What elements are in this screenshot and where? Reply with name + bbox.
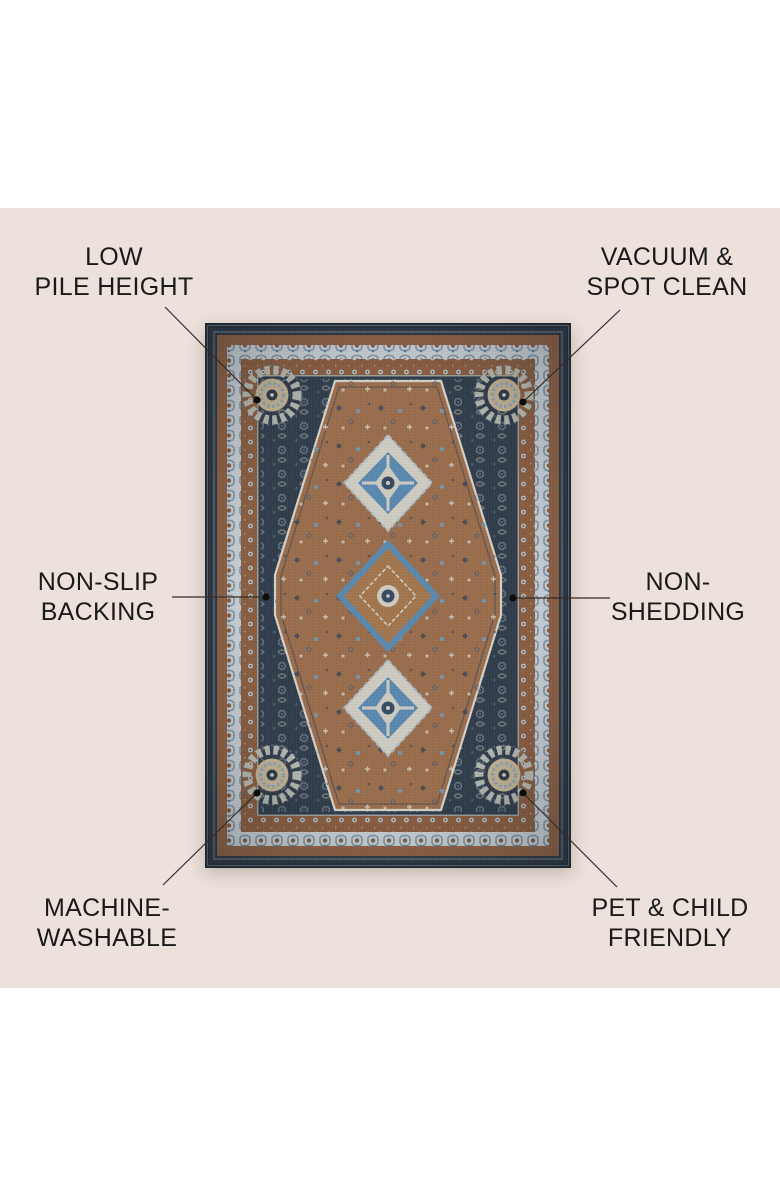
label-line: FRIENDLY bbox=[560, 923, 780, 953]
label-machine-washable: MACHINE- WASHABLE bbox=[0, 893, 214, 953]
rug-image bbox=[205, 323, 571, 868]
label-line: NON-SLIP bbox=[0, 567, 196, 597]
label-line: VACUUM & bbox=[554, 242, 780, 272]
label-line: SHEDDING bbox=[576, 597, 780, 627]
image-canvas: LOW PILE HEIGHT VACUUM & SPOT CLEAN NON-… bbox=[0, 208, 780, 988]
label-vacuum-spot-clean: VACUUM & SPOT CLEAN bbox=[554, 242, 780, 302]
label-non-slip-backing: NON-SLIP BACKING bbox=[0, 567, 196, 627]
label-non-shedding: NON- SHEDDING bbox=[576, 567, 780, 627]
label-line: PET & CHILD bbox=[560, 893, 780, 923]
label-line: MACHINE- bbox=[0, 893, 214, 923]
label-low-pile-height: LOW PILE HEIGHT bbox=[2, 242, 226, 302]
label-line: SPOT CLEAN bbox=[554, 272, 780, 302]
label-line: PILE HEIGHT bbox=[2, 272, 226, 302]
label-line: LOW bbox=[2, 242, 226, 272]
label-line: BACKING bbox=[0, 597, 196, 627]
label-pet-child-friendly: PET & CHILD FRIENDLY bbox=[560, 893, 780, 953]
label-line: WASHABLE bbox=[0, 923, 214, 953]
label-line: NON- bbox=[576, 567, 780, 597]
